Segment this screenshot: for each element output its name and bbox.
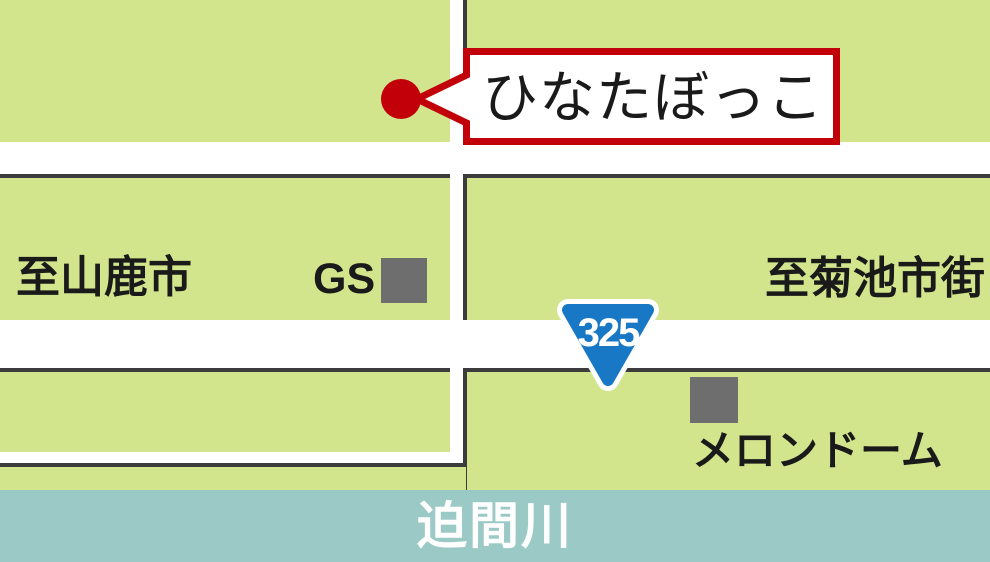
gas-station-label: GS bbox=[313, 258, 375, 301]
destination-callout: ひなたぼっこ bbox=[375, 42, 845, 154]
gas-station-building bbox=[381, 258, 427, 303]
map-block-bottom-left bbox=[0, 368, 450, 452]
access-map: 迫間川 至山鹿市 GS 至菊池市街 メロンドーム 325 ひなたぼっこ bbox=[0, 0, 990, 562]
melon-dome-building bbox=[690, 377, 738, 423]
direction-right-label: 至菊池市街 bbox=[765, 257, 985, 301]
road-horizontal-main bbox=[0, 320, 990, 368]
river-band: 迫間川 bbox=[0, 490, 990, 562]
destination-label: ひなたぼっこ bbox=[482, 66, 824, 129]
route-shield: 325 bbox=[552, 294, 664, 396]
route-number: 325 bbox=[578, 311, 640, 355]
road-horizontal-lower bbox=[0, 452, 463, 463]
landmark-label: メロンドーム bbox=[692, 430, 943, 472]
direction-left-label: 至山鹿市 bbox=[16, 256, 192, 300]
river-label: 迫間川 bbox=[0, 490, 990, 562]
map-block-river-bank bbox=[0, 463, 466, 490]
